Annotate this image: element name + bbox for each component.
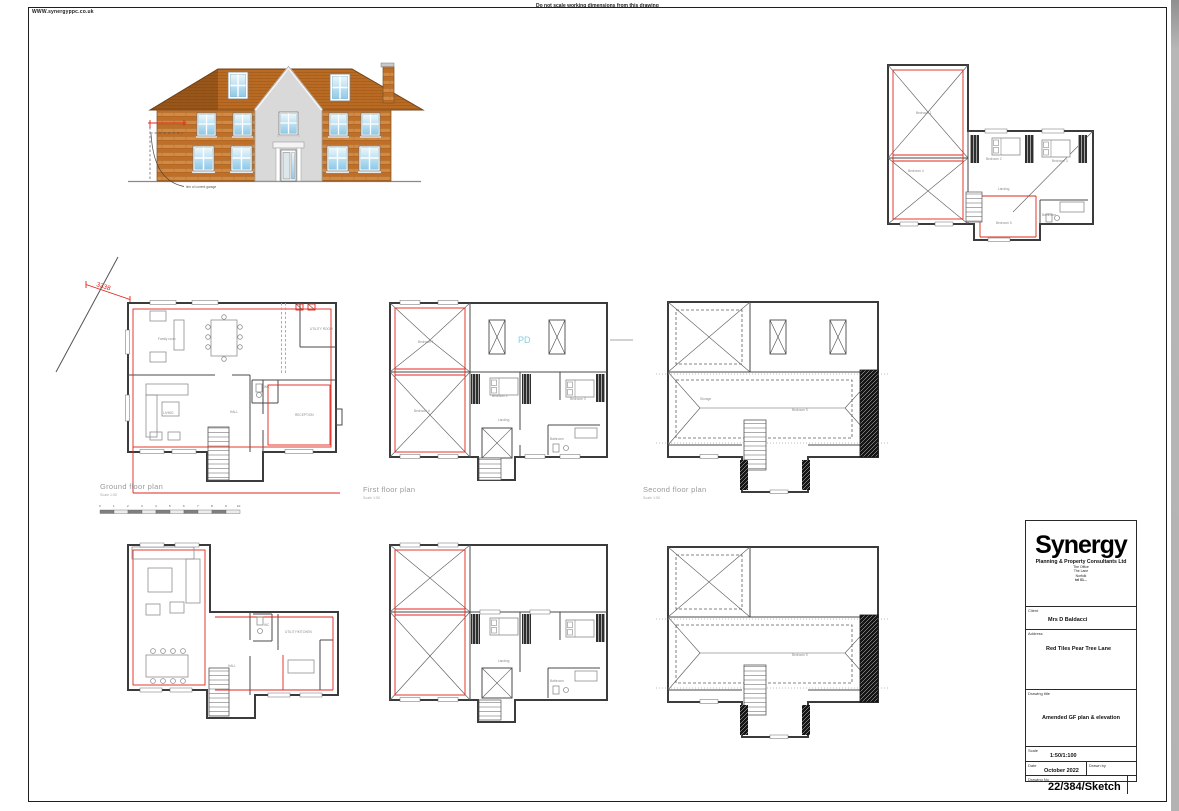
ground-floor-plan-scale: Scale 1:50 [100,493,117,497]
drawing-canvas: .w{stroke:#3b3b3b;stroke-width:2;fill:no… [0,0,1179,811]
room-label: WC [264,623,270,627]
room-label: Bedroom 4 [414,409,430,413]
room-label: Bathroom [1042,213,1056,217]
ground-floor-window [230,146,253,173]
bed [992,138,1020,155]
room-label: LIVING [163,411,174,415]
lower-first-floor-plan-drawing: Landing Bathroom [390,543,607,722]
room-label: Bedroom 4 [908,169,924,173]
room-label: Bedroom 1 [916,111,932,115]
title-block-scale-cell: Scale 1:50/1:100 [1026,746,1136,761]
first-floor-plan-drawing: Bedroom 1 Bedroom 4 Bedroom 2 Bedroom 3 … [390,301,633,481]
dormer-window-left [228,72,248,99]
first-floor-window [196,113,217,138]
room-label: Bathroom [550,437,564,441]
first-floor-window [328,113,349,138]
scale-tick: 5 [169,504,171,508]
room-label: Bedroom 2 [986,157,1002,161]
ground-floor-window [358,146,381,173]
title-block-client-cell: Client Mrs D Baldacci [1026,606,1136,629]
room-label: Landing [498,418,510,422]
dormer-window-right [330,74,350,101]
page-edge-strip [1171,0,1179,811]
scale-bar: 0 1 2 3 4 5 6 7 8 9 10 [99,504,241,514]
room-label: UTILITY ROOM [310,327,333,331]
drawing-no-label: Drawing No [1028,777,1049,782]
room-label: Bathroom [550,679,564,683]
first-floor-window [232,113,253,138]
scale-tick: 9 [225,504,227,508]
bed [1042,140,1070,157]
client-label: Client [1028,608,1038,613]
title-block-address-cell: Address Red Tiles Pear Tree Lane [1026,629,1136,689]
scale-value: 1:50/1:100 [1050,753,1077,759]
second-floor-plan-title: Second floor plan [643,485,706,494]
scale-tick: 0 [99,504,101,508]
rooflight [770,320,786,354]
date-label: Date [1028,763,1036,768]
room-label: Landing [998,187,1010,191]
bed [566,620,594,637]
title-block-drawing-title-cell: Drawing title Amended GF plan & elevatio… [1026,689,1136,746]
room-label: Storage [700,397,711,401]
bed [490,378,518,395]
scale-tick: 1 [113,504,115,508]
rooflight [830,320,846,354]
proposed-ground-floor-plan-drawing: HALL WC UTILITY/KITCHEN [128,543,338,718]
gable-window [278,112,299,137]
pd-label: PD [518,335,531,345]
first-floor-window [360,113,381,138]
room-label: Bedroom 1 [418,340,434,344]
room-label: UTILITY/KITCHEN [285,630,312,634]
company-office-line: tel 01... [1026,578,1136,582]
first-floor-plan-scale: Scale 1:50 [363,496,380,500]
address-value: Red Tiles Pear Tree Lane [1046,646,1111,652]
rooflight [549,320,565,354]
room-label: Bedroom 3 [570,397,586,401]
chimney [383,67,394,103]
scale-tick: 3 [141,504,143,508]
scale-tick: 8 [211,504,213,508]
drawing-title-label: Drawing title [1028,691,1050,696]
scale-tick: 10 [237,504,241,508]
front-door [273,142,304,181]
scale-label: Scale [1028,748,1038,753]
room-label: Landing [498,659,510,663]
ground-floor-window [326,146,349,173]
rooflight [489,320,505,354]
client-value: Mrs D Baldacci [1048,617,1087,623]
drawn-by-label: Drawn by [1089,763,1106,768]
address-label: Address [1028,631,1043,636]
drawing-sheet: WWW.synergyppc.co.uk Do not scale workin… [0,0,1179,811]
bed [490,618,518,635]
bed [566,380,594,397]
room-label: Bedroom 5 [792,408,808,412]
second-floor-plan-scale: Scale 1:50 [643,496,660,500]
company-logo: Synergy [1026,533,1136,558]
second-floor-plan-drawing: Storage Bedroom 5 [656,302,890,494]
room-label: HALL [230,410,238,414]
scale-tick: 6 [183,504,185,508]
title-block-drawing-no-cell: Drawing No 22/384/Sketch [1026,775,1136,794]
scale-tick: 2 [127,504,129,508]
front-elevation-drawing: line of current garage [128,63,423,189]
drawing-no-value: 22/384/Sketch [1048,781,1121,793]
room-label: Bedroom 5 [996,221,1012,225]
garage-note: line of current garage [186,185,216,189]
scale-tick: 7 [197,504,199,508]
room-label: WC [264,385,270,389]
ground-floor-plan-drawing: Family room UTILITY ROOM LIVING HALL REC… [126,301,343,494]
proposed-first-floor-plan-drawing: Bedroom 1 Bedroom 4 Bedroom 2 Bedroom 3 … [888,65,1093,242]
drawing-no-divider [1127,776,1128,794]
title-block-logo-cell: Synergy Planning & Property Consultants … [1026,533,1136,606]
title-block: Synergy Planning & Property Consultants … [1025,520,1137,782]
room-label: Bedroom 3 [1052,159,1068,163]
date-value: October 2022 [1044,768,1079,774]
drawing-title-value: Amended GF plan & elevation [1026,715,1136,721]
site-boundary: 3338 [56,257,130,372]
room-label: Bedroom 5 [792,653,808,657]
ground-floor-plan-title: Ground floor plan [100,482,163,491]
room-label: Bedroom 2 [492,394,508,398]
room-label: HALL [228,664,236,668]
room-label: Family room [158,337,176,341]
drawn-by-cell: Drawn by [1086,762,1136,775]
first-floor-plan-title: First floor plan [363,485,415,494]
scale-tick: 4 [155,504,157,508]
lower-second-floor-plan-drawing: Bedroom 5 [656,547,890,739]
room-label: RECEPTION [295,413,314,417]
title-block-date-cell: Date October 2022 Drawn by [1026,761,1136,775]
ground-floor-window [192,146,215,173]
